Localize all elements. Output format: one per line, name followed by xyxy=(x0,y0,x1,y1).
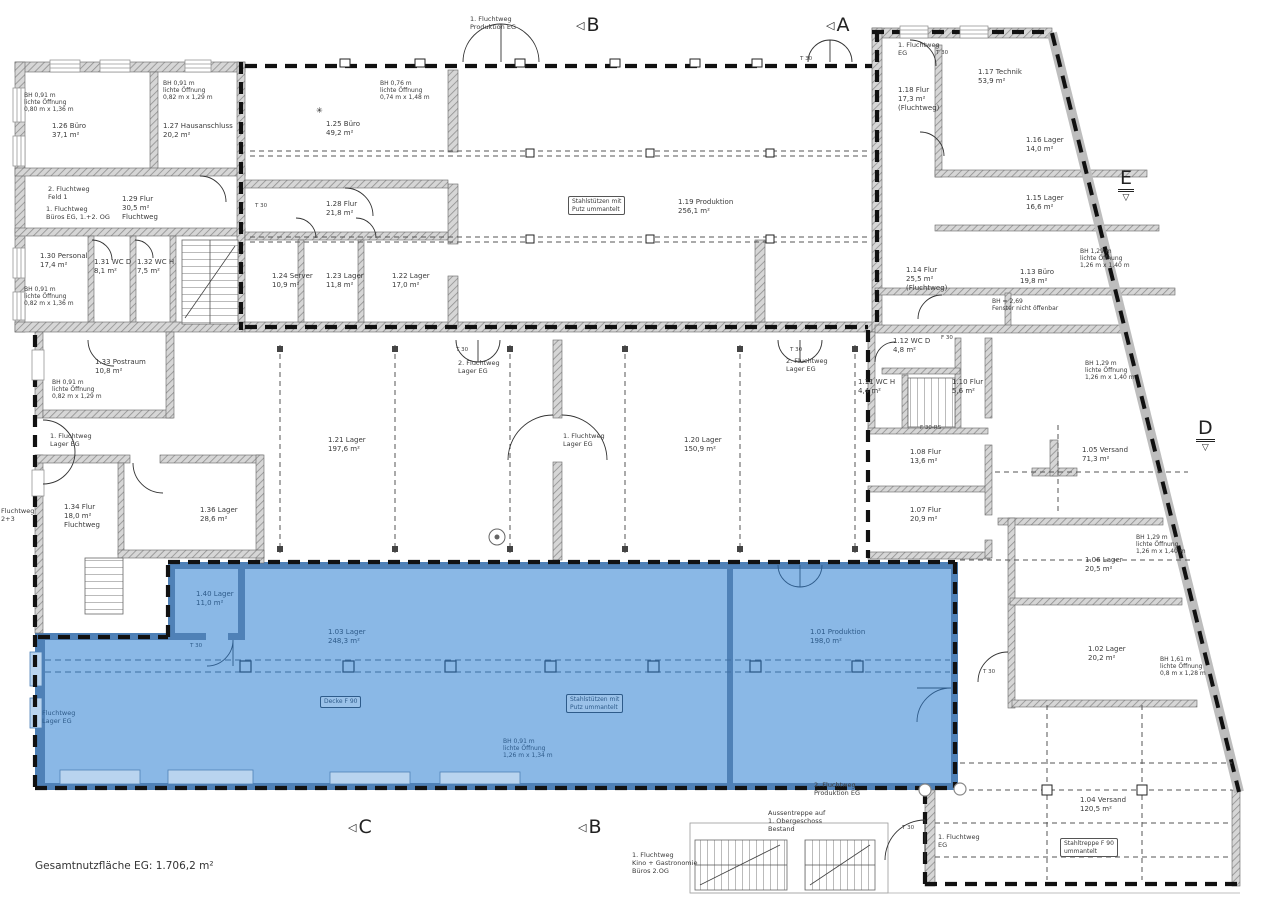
floor-plan: BH 0,91 mlichte Öffnung0,80 m x 1,36 m1.… xyxy=(0,0,1280,912)
plan-label: T 30 xyxy=(983,669,995,676)
total-area-note: Gesamtnutzfläche EG: 1.706,2 m² xyxy=(35,860,214,873)
plan-label: 2. FluchtwegLager EG xyxy=(786,358,828,374)
section-marker-a: ◁A xyxy=(826,14,849,36)
section-marker-b: ◁B xyxy=(578,816,602,838)
plan-label: 1. FluchtwegProduktion EG xyxy=(470,16,516,32)
room-1-16: 1.16 Lager14,0 m² xyxy=(1026,136,1064,154)
room-1-30: 1.30 Personal17,4 m² xyxy=(40,252,88,270)
plan-label: BH = 2,69Fenster nicht öffenbar xyxy=(992,298,1058,312)
room-1-01: 1.01 Produktion198,0 m² xyxy=(810,628,865,646)
room-1-31: 1.31 WC D8,1 m² xyxy=(94,258,131,276)
plan-label: 1. FluchtwegKino + GastronomieBüros 2.OG xyxy=(632,852,697,875)
plan-label: T 30 xyxy=(456,347,468,354)
room-1-20: 1.20 Lager150,9 m² xyxy=(684,436,722,454)
plan-label: T 30 xyxy=(800,56,812,63)
room-1-15: 1.15 Lager16,6 m² xyxy=(1026,194,1064,212)
room-1-08: 1.08 Flur13,6 m² xyxy=(910,448,941,466)
room-1-36: 1.36 Lager28,6 m² xyxy=(200,506,238,524)
plan-label: Aussentreppe auf1. ObergeschossBestand xyxy=(768,810,825,833)
room-1-04: 1.04 Versand120,5 m² xyxy=(1080,796,1126,814)
room-1-14: 1.14 Flur25,5 m²(Fluchtweg) xyxy=(906,266,947,292)
plan-label: BH 0,76 mlichte Öffnung0,74 m x 1,48 m xyxy=(380,80,430,102)
plan-label: F 30-RS xyxy=(920,425,941,432)
room-1-18: 1.18 Flur17,3 m²(Fluchtweg) xyxy=(898,86,939,112)
room-1-05: 1.05 Versand71,3 m² xyxy=(1082,446,1128,464)
plan-label: 1. FluchtwegLager EG xyxy=(563,433,605,449)
plan-label: BH 0,91 mlichte Öffnung0,82 m x 1,29 m xyxy=(52,379,102,401)
plan-label: BH 1,29 mlichte Öffnung1,26 m x 1,40 m xyxy=(1136,534,1186,556)
section-marker-d: D▽ xyxy=(1196,418,1215,453)
plan-label: T 30 xyxy=(790,347,802,354)
plan-label: BH 1,29 mlichte Öffnung1,26 m x 1,40 m xyxy=(1085,360,1135,382)
room-1-23: 1.23 Lager11,8 m² xyxy=(326,272,364,290)
plan-label: BH 0,91 mlichte Öffnung0,80 m x 1,36 m xyxy=(24,92,74,114)
plan-label: FluchtwegLager EG xyxy=(42,710,75,726)
room-1-11: 1.11 WC H4,4 m² xyxy=(858,378,895,396)
plan-label: BH 1,29 mlichte Öffnung1,26 m x 1,40 m xyxy=(1080,248,1130,270)
room-1-26: 1.26 Büro37,1 m² xyxy=(52,122,86,140)
section-marker-b: ◁B xyxy=(576,14,600,36)
room-1-22: 1.22 Lager17,0 m² xyxy=(392,272,430,290)
room-1-28: 1.28 Flur21,8 m² xyxy=(326,200,357,218)
plan-label: Stahlstützen mitPutz ummantelt xyxy=(566,694,623,713)
section-marker-e: E▽ xyxy=(1118,168,1134,203)
plan-label: BH 0,91 mlichte Öffnung0,82 m x 1,36 m xyxy=(24,286,74,308)
plan-label: Decke F 90 xyxy=(320,696,361,708)
plan-label: 1. FluchtwegBüros EG, 1.+2. OG xyxy=(46,206,110,222)
plan-label: T 30 xyxy=(902,825,914,832)
plan-label: Fluchtweg2+3 xyxy=(1,508,34,524)
room-1-06: 1.06 Lager20,5 m² xyxy=(1085,556,1123,574)
plan-label: 1. FluchtwegEG xyxy=(938,834,980,850)
room-1-40: 1.40 Lager11,0 m² xyxy=(196,590,234,608)
plan-label: 2. FluchtwegFeld 1 xyxy=(48,186,90,202)
room-1-10: 1.10 Flur5,6 m² xyxy=(952,378,983,396)
plan-label: 2. FluchtwegProduktion EG xyxy=(814,782,860,798)
plan-label: 2. FluchtwegLager EG xyxy=(458,360,500,376)
room-1-21: 1.21 Lager197,6 m² xyxy=(328,436,366,454)
plan-label: BH 0,91 mlichte Öffnung0,82 m x 1,29 m xyxy=(163,80,213,102)
plan-label: BH 1,61 mlichte Öffnung0,8 m x 1,28 m xyxy=(1160,656,1206,678)
plan-label: BH 0,91 mlichte Öffnung1,26 m x 1,34 m xyxy=(503,738,553,760)
room-1-07: 1.07 Flur20,9 m² xyxy=(910,506,941,524)
room-1-32: 1.32 WC H7,5 m² xyxy=(137,258,174,276)
room-1-12: 1.12 WC D4,8 m² xyxy=(893,337,930,355)
section-marker-c: ◁C xyxy=(348,816,372,838)
room-1-17: 1.17 Technik53,9 m² xyxy=(978,68,1022,86)
room-1-03: 1.03 Lager248,3 m² xyxy=(328,628,366,646)
room-1-02: 1.02 Lager20,2 m² xyxy=(1088,645,1126,663)
room-1-33: 1.33 Postraum10,8 m² xyxy=(95,358,146,376)
plan-label: 1. FluchtwegLager EG xyxy=(50,433,92,449)
plan-label: Stahltreppe F 90ummantelt xyxy=(1060,838,1118,857)
plan-label: 1. FluchtwegEG xyxy=(898,42,940,58)
room-1-25: 1.25 Büro49,2 m² xyxy=(326,120,360,138)
plan-label: T 30 xyxy=(190,643,202,650)
plan-label: ✳ xyxy=(316,106,323,116)
room-1-24: 1.24 Server10,9 m² xyxy=(272,272,313,290)
plan-label: F 30 xyxy=(941,335,953,342)
labels-layer: BH 0,91 mlichte Öffnung0,80 m x 1,36 m1.… xyxy=(0,0,1280,912)
plan-label: T 30 xyxy=(255,203,267,210)
room-1-13: 1.13 Büro19,8 m² xyxy=(1020,268,1054,286)
room-1-34: 1.34 Flur18,0 m²Fluchtweg xyxy=(64,503,100,529)
plan-label: Stahlstützen mitPutz ummantelt xyxy=(568,196,625,215)
room-1-19: 1.19 Produktion256,1 m² xyxy=(678,198,733,216)
room-1-29: 1.29 Flur30,5 m²Fluchtweg xyxy=(122,195,158,221)
room-1-27: 1.27 Hausanschluss20,2 m² xyxy=(163,122,233,140)
